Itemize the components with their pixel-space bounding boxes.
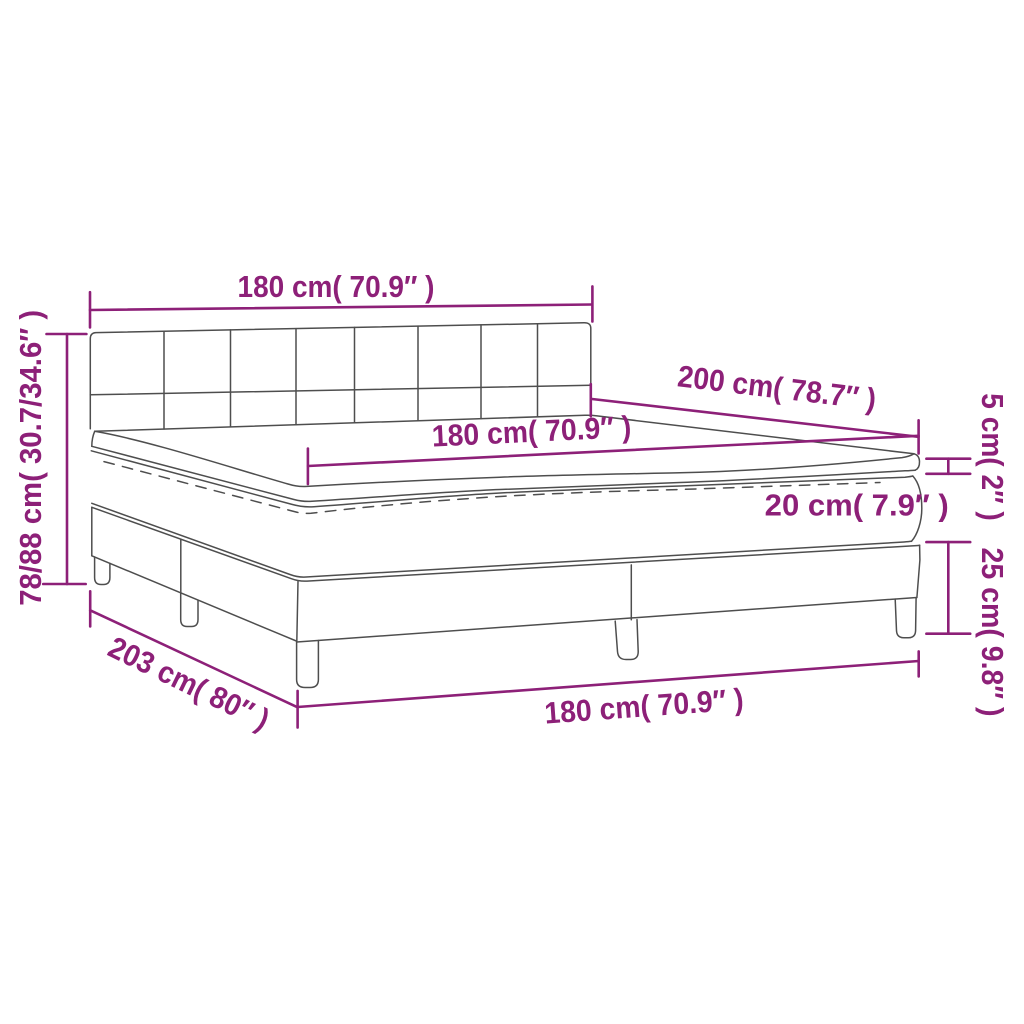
svg-text:20 cm( 7.9″ ): 20 cm( 7.9″ ) (765, 489, 949, 523)
svg-text:200 cm( 78.7″ ): 200 cm( 78.7″ ) (676, 359, 878, 416)
svg-text:180 cm( 70.9″ ): 180 cm( 70.9″ ) (238, 270, 435, 304)
svg-text:5 cm( 2″ ): 5 cm( 2″ ) (975, 393, 1009, 521)
svg-text:180 cm( 70.9″ ): 180 cm( 70.9″ ) (431, 410, 632, 454)
svg-text:78/88 cm( 30.7/34.6″ ): 78/88 cm( 30.7/34.6″ ) (14, 310, 48, 606)
svg-text:180 cm( 70.9″ ): 180 cm( 70.9″ ) (543, 682, 744, 730)
svg-text:25 cm( 9.8″ ): 25 cm( 9.8″ ) (975, 548, 1009, 717)
